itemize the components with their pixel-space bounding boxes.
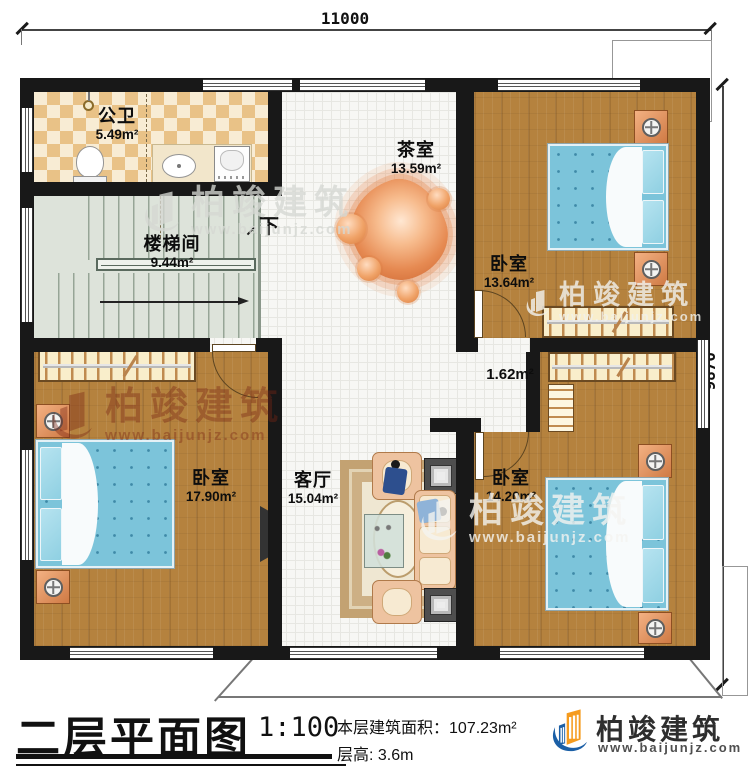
title-underline-thin <box>16 764 346 766</box>
window <box>300 79 425 91</box>
witness-line <box>21 29 22 45</box>
lamp-icon <box>44 412 63 431</box>
nightstand <box>638 444 672 478</box>
room-label-bedroom-left: 卧室 17.90m² <box>186 468 236 504</box>
window <box>70 647 213 659</box>
room-name: 客厅 <box>288 470 338 491</box>
armchair <box>372 580 422 624</box>
wardrobe <box>38 350 196 382</box>
floor-area-value: 107.23m² <box>449 720 517 737</box>
bed-sheet <box>62 443 98 565</box>
nightstand <box>36 570 70 604</box>
brand-logo-icon <box>545 704 593 758</box>
lamp-icon <box>642 260 661 279</box>
room-label-tea-room: 茶室 13.59m² <box>391 140 441 176</box>
floor-height-label: 层高: <box>337 747 373 764</box>
person-figure <box>382 460 408 494</box>
room-area: 14.20m² <box>486 489 536 505</box>
room-label-bathroom: 公卫 5.49m² <box>96 106 139 142</box>
room-area: 5.49m² <box>96 127 139 143</box>
room-label-living-room: 客厅 15.04m² <box>288 470 338 506</box>
room-area: 13.64m² <box>484 275 534 291</box>
balcony-outline-bottom <box>722 566 748 696</box>
table-lamp-icon <box>430 465 452 486</box>
pillow <box>642 150 664 194</box>
room-name: 卧室 <box>484 254 534 275</box>
window <box>21 450 33 560</box>
floor-area-line: 本层建筑面积：107.23m² <box>337 714 517 738</box>
bathroom-partition <box>146 94 147 182</box>
bed-sheet <box>606 147 642 247</box>
sink-icon <box>162 154 196 178</box>
window <box>500 647 644 659</box>
side-table <box>424 458 458 494</box>
tea-stool <box>397 281 419 303</box>
room-label-hallway: 1.62m² <box>486 366 534 383</box>
window <box>290 647 437 659</box>
pillow <box>40 508 62 561</box>
room-label-stairwell: 楼梯间 9.44m² <box>144 234 201 270</box>
room-name: 楼梯间 <box>144 234 201 255</box>
bed <box>36 440 174 568</box>
window <box>21 108 33 172</box>
pendant-light-icon <box>83 100 94 111</box>
wardrobe <box>548 352 676 382</box>
bed-sheet <box>606 481 642 607</box>
wall <box>456 432 474 646</box>
pillow <box>642 485 664 540</box>
pillow <box>642 548 664 603</box>
wall <box>529 418 540 432</box>
room-label-bedroom-top: 卧室 13.64m² <box>484 254 534 290</box>
floor-height-value: 3.6m <box>378 747 414 764</box>
wall <box>268 352 282 646</box>
title-underline-thick <box>16 754 332 759</box>
brand-website: www.baijunjz.com <box>598 740 742 755</box>
room-name: 卧室 <box>486 468 536 489</box>
wall <box>430 418 481 432</box>
wardrobe <box>542 306 674 338</box>
top-dimension-label: 11000 <box>321 9 369 28</box>
tea-stool <box>336 214 366 244</box>
room-area: 17.90m² <box>186 489 236 505</box>
nightstand <box>36 404 70 438</box>
nightstand <box>634 252 668 286</box>
lamp-icon <box>646 452 665 471</box>
room-area: 13.59m² <box>391 161 441 177</box>
nightstand <box>638 612 672 644</box>
shoe-rack <box>548 384 574 432</box>
stair-arrow-head <box>238 297 249 305</box>
wall <box>456 92 474 338</box>
leader-line <box>689 658 723 698</box>
tea-stool <box>357 257 381 281</box>
side-table <box>424 588 458 622</box>
top-dimension-line <box>22 29 712 31</box>
wall <box>256 338 282 352</box>
room-name: 茶室 <box>391 140 441 161</box>
tea-stool <box>428 188 450 210</box>
door-leaf <box>212 344 256 352</box>
wall <box>20 338 210 352</box>
window <box>21 208 33 322</box>
pillow <box>642 200 664 244</box>
wall <box>456 338 478 352</box>
room-name: 公卫 <box>96 106 139 127</box>
lamp-icon <box>642 118 661 137</box>
window <box>697 340 709 428</box>
wall <box>20 182 282 196</box>
pillow <box>40 447 62 500</box>
room-area: 1.62m² <box>486 366 534 383</box>
table-lamp-icon <box>430 595 452 615</box>
window <box>498 79 640 91</box>
lamp-icon <box>646 619 665 638</box>
pendant-cord <box>88 92 90 101</box>
room-area: 9.44m² <box>144 255 201 271</box>
leader-line <box>218 696 722 698</box>
bed <box>546 478 668 610</box>
person-figure <box>418 498 448 524</box>
bed <box>548 144 668 250</box>
nightstand <box>634 110 668 144</box>
stair-direction-label: 下 <box>259 210 279 239</box>
room-area: 15.04m² <box>288 491 338 507</box>
window <box>203 79 292 91</box>
wall <box>268 92 282 196</box>
door-leaf <box>475 432 484 480</box>
washing-machine-icon <box>214 146 250 182</box>
coffee-table <box>364 514 404 568</box>
toilet-icon <box>76 146 104 178</box>
room-name: 卧室 <box>186 468 236 489</box>
floor-area-label: 本层建筑面积： <box>337 720 449 737</box>
wall <box>530 338 710 352</box>
lamp-icon <box>44 578 63 597</box>
room-label-bedroom-right: 卧室 14.20m² <box>486 468 536 504</box>
stair-direction-arrow <box>100 301 240 303</box>
stair-break-line <box>160 196 161 238</box>
floor-plan-canvas: 11000 9870 <box>0 0 750 774</box>
scale-label: 1:100 <box>258 712 339 743</box>
stair-treads-lower <box>58 273 258 338</box>
floor-height-line: 层高: 3.6m <box>337 741 413 765</box>
